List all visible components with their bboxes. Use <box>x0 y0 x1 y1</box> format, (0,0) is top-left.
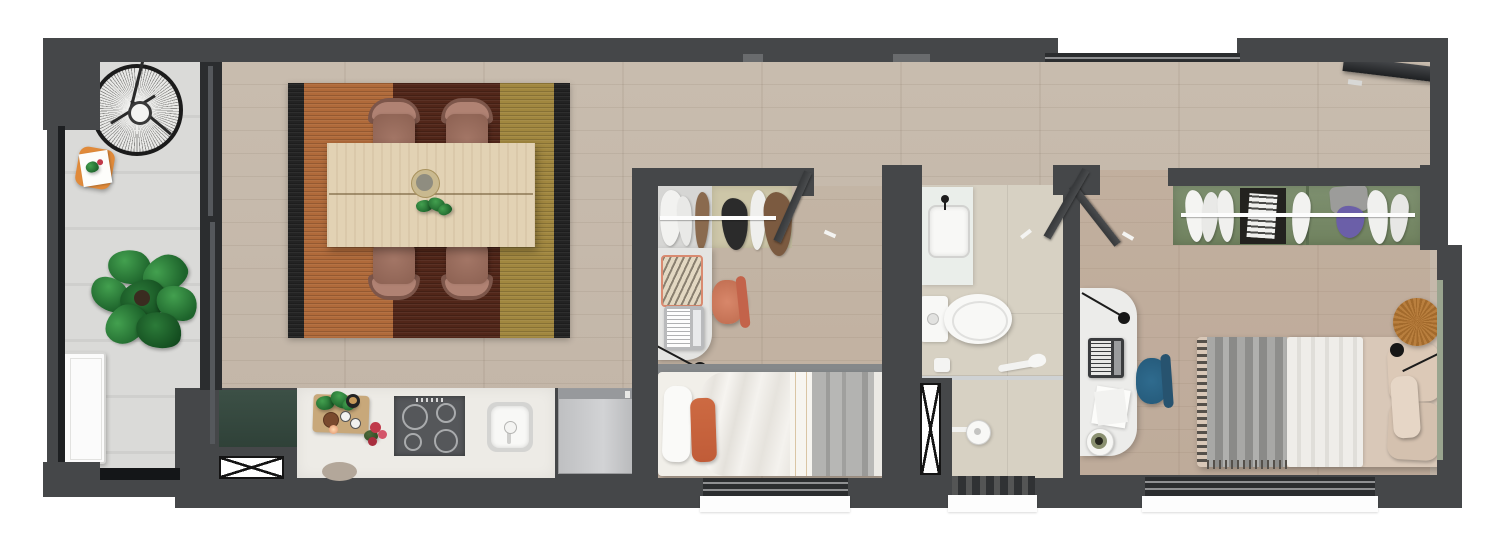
wire-lounge-chair <box>91 64 183 156</box>
chair-hub <box>128 101 152 125</box>
bathroom-window-icon <box>920 383 941 475</box>
bed1-orange-cushion <box>690 398 717 463</box>
bed2-small-pillow <box>1390 375 1421 439</box>
desk-speaker-center <box>1095 437 1103 445</box>
burner <box>402 404 428 430</box>
dining-chair <box>368 240 420 300</box>
bedroom1-window-track <box>703 478 848 496</box>
kitchen-green-cabinet <box>219 390 297 447</box>
wardrobe-rail <box>660 216 776 220</box>
kitchen-stool <box>322 462 357 481</box>
top-window-track <box>1045 53 1240 62</box>
side-table-lamp <box>1390 343 1404 357</box>
balcony-cabinet <box>62 352 106 464</box>
bed2-throw-fringe-bottom <box>1207 460 1287 469</box>
bed2-throw-fringe-left <box>1197 340 1207 464</box>
shower-vent-band <box>952 476 1035 496</box>
bedroom1-left-wall <box>632 168 658 508</box>
rug-border-left <box>288 83 304 338</box>
bed1-sheet-dotted <box>790 372 812 476</box>
cooktop-controls <box>416 398 444 402</box>
corner-block-top-left <box>43 38 100 130</box>
balcony-sliding-door <box>200 62 222 390</box>
balcony-bottom-wall <box>43 480 180 497</box>
right-wall-upper <box>1430 38 1448 172</box>
kitchen-sink <box>487 402 533 452</box>
top-wall-recess <box>893 54 930 62</box>
basin-faucet-stem <box>944 201 946 210</box>
toilet-bowl <box>944 294 1012 344</box>
dining-chair <box>441 240 493 300</box>
small-bowl <box>340 411 351 422</box>
right-wall-radiator-strip <box>1437 280 1443 460</box>
bathroom-basin <box>928 205 970 258</box>
bed1-gray-blankets <box>812 372 876 476</box>
right-wall-mid-block <box>1420 165 1448 250</box>
candle <box>329 425 338 434</box>
round-side-table <box>1393 298 1441 346</box>
bathroom-window-sill <box>948 495 1037 512</box>
bedroom1-top-wall <box>632 168 814 186</box>
bedroom2-window-sill <box>1142 496 1378 512</box>
floor-plan <box>0 0 1500 545</box>
top-wall-window <box>1058 38 1237 53</box>
desk-papers <box>1094 388 1128 425</box>
fridge-hinge <box>625 391 630 398</box>
bedroom2-wall-lamp <box>1118 312 1130 324</box>
balcony-left-wall-strip <box>58 126 65 474</box>
laptop <box>664 306 704 350</box>
bed1-pillow <box>662 386 693 463</box>
bedroom1-desk-chair <box>712 274 752 332</box>
top-wall-recess <box>743 54 763 62</box>
centerpiece-bowl-inner <box>416 174 433 191</box>
sink-faucet-base <box>504 421 517 434</box>
bedroom2-window-track <box>1145 477 1375 496</box>
bedroom1-window-sill <box>700 496 850 512</box>
toilet-flush-button <box>927 313 939 325</box>
plant-pot <box>134 290 150 306</box>
bedroom2-desk-chair <box>1136 352 1178 410</box>
small-bowl <box>350 418 361 429</box>
cooktop <box>394 396 465 456</box>
desk-mat <box>661 255 703 307</box>
wardrobe-rail <box>1181 213 1415 217</box>
bathroom-right-wall <box>1063 190 1080 508</box>
croissant <box>349 397 357 404</box>
bedroom2-top-wall <box>1168 168 1430 186</box>
laptop <box>1088 338 1124 378</box>
burner <box>404 433 422 451</box>
bed2-gray-throw <box>1207 337 1287 467</box>
soap-dish <box>934 358 950 372</box>
burner <box>436 403 456 423</box>
burner <box>434 429 458 453</box>
bed2-white-quilt <box>1287 337 1363 467</box>
rug-border-right <box>554 83 570 338</box>
balcony-edge-strip <box>100 468 180 480</box>
shower-head-center <box>974 428 981 435</box>
kitchen-window-icon <box>219 456 284 479</box>
refrigerator <box>558 388 634 474</box>
magazine <box>79 150 113 187</box>
